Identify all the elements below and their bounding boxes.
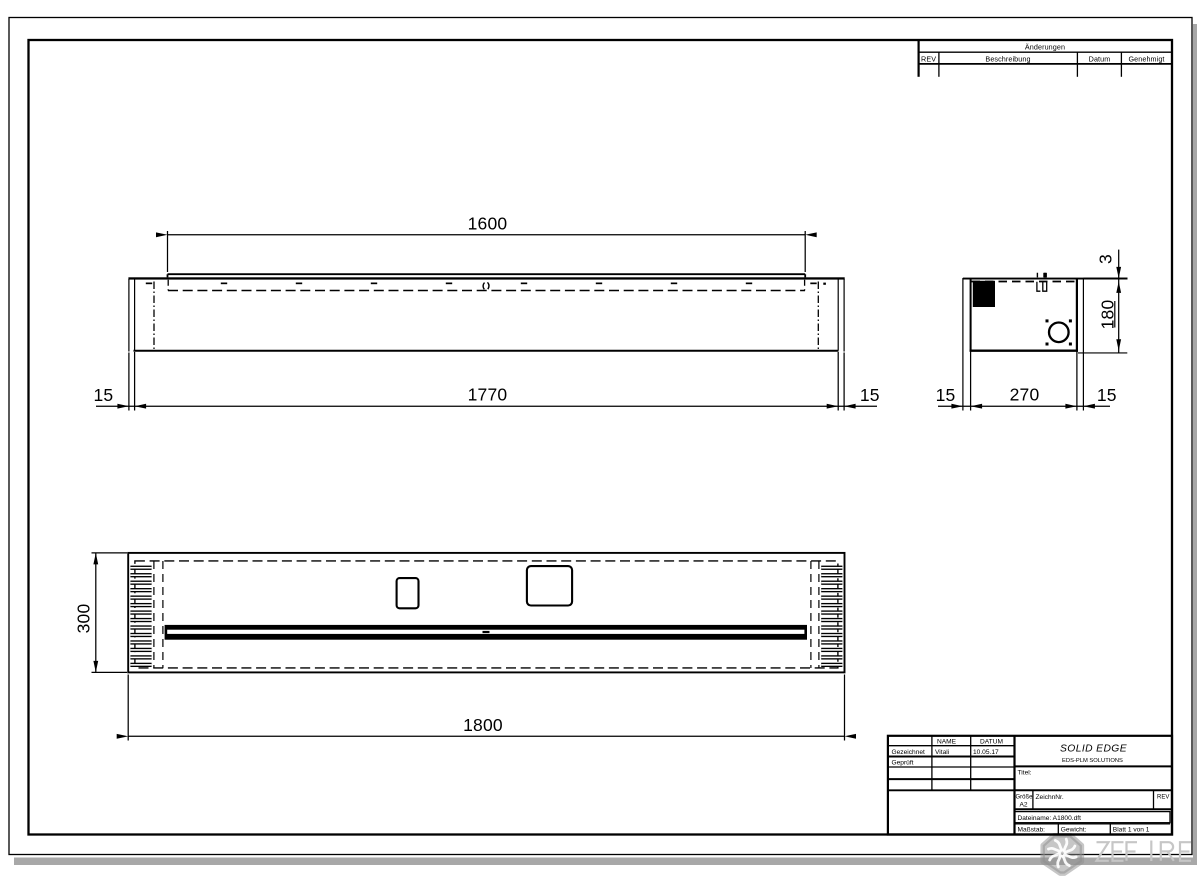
svg-text:ZeichnNr.: ZeichnNr. <box>1036 794 1064 801</box>
svg-text:15: 15 <box>936 385 956 405</box>
svg-text:1770: 1770 <box>468 384 508 404</box>
svg-text:15: 15 <box>860 385 880 405</box>
svg-text:Maßstab:: Maßstab: <box>1018 827 1046 834</box>
svg-text:Dateiname: A1800.dft: Dateiname: A1800.dft <box>1018 815 1082 822</box>
svg-text:Gewicht:: Gewicht: <box>1061 827 1087 834</box>
svg-text:3: 3 <box>1096 254 1116 264</box>
svg-text:NAME: NAME <box>937 738 957 745</box>
svg-text:15: 15 <box>93 385 113 405</box>
svg-text:EDS-PLM SOLUTIONS: EDS-PLM SOLUTIONS <box>1062 758 1123 764</box>
svg-text:1800: 1800 <box>463 715 503 735</box>
svg-text:Geprüft: Geprüft <box>892 760 914 767</box>
svg-text:1600: 1600 <box>468 214 508 234</box>
svg-text:300: 300 <box>74 604 94 634</box>
svg-text:Beschreibung: Beschreibung <box>985 54 1030 63</box>
svg-text:10.05.17: 10.05.17 <box>973 749 999 756</box>
svg-text:270: 270 <box>1010 384 1040 404</box>
svg-text:Datum: Datum <box>1089 54 1111 63</box>
svg-text:Titel:: Titel: <box>1018 770 1032 777</box>
svg-text:Größe: Größe <box>1016 795 1034 801</box>
svg-text:Blatt 1 von 1: Blatt 1 von 1 <box>1113 827 1150 834</box>
svg-text:Vitali: Vitali <box>935 749 950 756</box>
svg-text:DATUM: DATUM <box>980 738 1003 745</box>
svg-text:Genehmigt: Genehmigt <box>1128 54 1164 63</box>
svg-text:Gezeichnet: Gezeichnet <box>892 749 926 756</box>
svg-text:15: 15 <box>1097 385 1117 405</box>
svg-text:REV: REV <box>1157 795 1169 801</box>
svg-text:Änderungen: Änderungen <box>1025 43 1065 52</box>
svg-text:REV: REV <box>921 54 936 63</box>
svg-text:A2: A2 <box>1020 802 1028 809</box>
svg-text:SOLID EDGE: SOLID EDGE <box>1060 743 1127 754</box>
